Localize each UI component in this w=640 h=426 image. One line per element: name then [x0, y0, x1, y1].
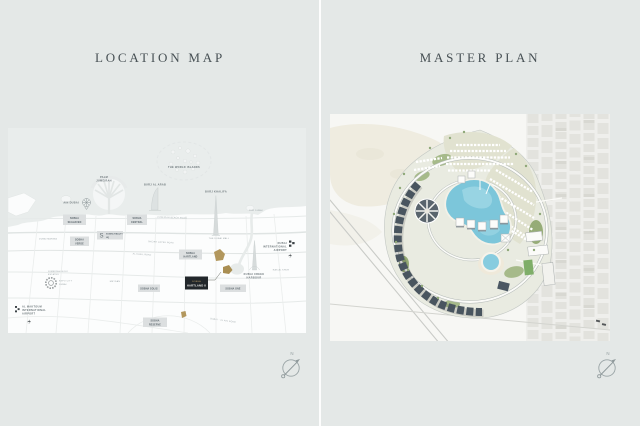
- plane-icon: ✈: [288, 253, 294, 257]
- location-map-panel: LOCATION MAP: [0, 0, 320, 426]
- ain-dubai-label: AIN DUBAI: [63, 202, 79, 205]
- svg-text:SOBHA: SOBHA: [70, 217, 79, 220]
- compass-icon: N: [594, 349, 620, 383]
- svg-text:SOBHA: SOBHA: [75, 239, 84, 242]
- master-plan-panel: MASTER PLAN: [320, 0, 640, 426]
- svg-text:HARTLAND: HARTLAND: [184, 256, 198, 259]
- burj-khalifa-label: BURJ KHALIFA: [205, 191, 227, 194]
- dwc-label-3: AIRPORT: [22, 312, 36, 315]
- master-plan-title: MASTER PLAN: [320, 50, 640, 66]
- svg-text:SOBHA SOLIS: SOBHA SOLIS: [140, 287, 158, 290]
- dubai-mall-label: THE DUBAI MALL: [209, 237, 230, 240]
- master-plan-svg: [330, 114, 610, 341]
- label-sobha-realty-hq: S SOBHA REALTY HQ: [97, 231, 123, 240]
- label-sobha-verde: SOBHA VERDE: [70, 237, 89, 247]
- label-sobha-seahaven: SOBHA SEAHAVEN: [63, 215, 86, 226]
- location-map-svg: THE WORLD ISLANDS PALM JUMEIRAH: [8, 128, 306, 333]
- svg-text:CENTRAL: CENTRAL: [131, 221, 143, 224]
- leisure-pool: [478, 253, 504, 275]
- sports-field: [523, 260, 534, 276]
- svg-text:VERDE: VERDE: [75, 243, 84, 245]
- label-sobha-hartland: SOBHA HARTLAND: [179, 250, 202, 260]
- svg-text:HARTLAND II: HARTLAND II: [187, 284, 206, 288]
- master-plan-figure: [330, 114, 610, 341]
- dxb-label-3: AIRPORT: [274, 249, 288, 252]
- expo-label-2: DUBAI: [59, 283, 67, 286]
- label-sobha-reserve: SOBHA RESERVE: [143, 318, 167, 328]
- circular-plaza: [415, 199, 439, 223]
- svg-text:SEAHAVEN: SEAHAVEN: [68, 221, 82, 224]
- svg-text:RESERVE: RESERVE: [149, 324, 161, 326]
- compass-tail-loop: [598, 375, 601, 378]
- compass-needle: [600, 361, 614, 375]
- sea-area: [8, 128, 306, 227]
- svg-text:SOBHA: SOBHA: [132, 217, 141, 220]
- sobha-logo: S: [99, 234, 103, 240]
- jge-label-2: ESTATES: [48, 273, 59, 276]
- svg-text:HQ: HQ: [106, 237, 110, 239]
- compass-tail-loop: [282, 375, 285, 378]
- dubai-marina-label: DUBAI MARINA: [39, 238, 57, 241]
- label-sobha-one: SOBHA ONE: [220, 285, 246, 293]
- compass-icon: N: [278, 349, 304, 383]
- jge-label-1: JUMEIRAH GOLF: [48, 270, 69, 273]
- svg-text:SOBHA ONE: SOBHA ONE: [225, 287, 240, 290]
- label-sobha-central: SOBHA CENTRAL: [127, 215, 147, 226]
- meydan-label: MEYDAN: [110, 280, 121, 283]
- compass-needle: [284, 361, 298, 375]
- palm-label-2: JUMEIRAH: [96, 179, 111, 182]
- expo-label-1: EXPO CITY: [59, 281, 73, 283]
- brochure-spread: LOCATION MAP: [0, 0, 640, 426]
- svg-text:SOBHA: SOBHA: [186, 252, 195, 255]
- helipad-square: [501, 234, 510, 242]
- compass-north-label: N: [606, 351, 609, 356]
- svg-text:SOBHA: SOBHA: [192, 280, 201, 283]
- creek-harbour-label-2: HARBOUR: [247, 276, 262, 279]
- world-islands-label: THE WORLD ISLANDS: [168, 166, 200, 169]
- location-map-figure: THE WORLD ISLANDS PALM JUMEIRAH: [8, 128, 306, 333]
- ras-al-khor-label: RAS AL KHOR: [273, 269, 290, 272]
- label-sobha-solis: SOBHA SOLIS: [138, 285, 160, 293]
- compass-north-label: N: [290, 351, 293, 356]
- plane-icon: ✈: [27, 319, 33, 323]
- bur-dubai-label: BUR DUBAI: [249, 209, 263, 212]
- burj-al-arab-label: BURJ AL ARAB: [144, 184, 166, 187]
- location-map-title: LOCATION MAP: [0, 50, 320, 66]
- svg-text:SOBHA REALTY: SOBHA REALTY: [106, 233, 123, 236]
- label-sobha-hartland-2-featured: SOBHA HARTLAND II: [185, 277, 208, 290]
- svg-text:SOBHA: SOBHA: [150, 320, 159, 323]
